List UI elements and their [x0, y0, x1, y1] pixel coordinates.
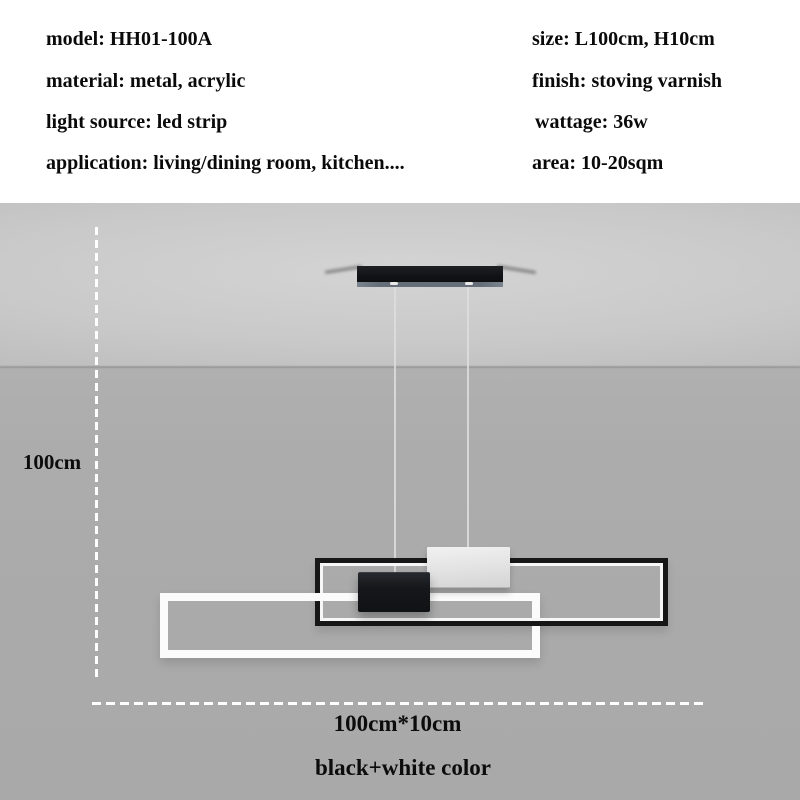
canopy-body [357, 266, 503, 282]
spec-wattage: wattage: 36w [535, 110, 648, 134]
spec-finish: finish: stoving varnish [532, 69, 722, 93]
black-frame-front-crossing [528, 618, 546, 626]
canopy-trim [357, 282, 503, 287]
wire-connector-left [390, 282, 398, 285]
spec-material: material: metal, acrylic [46, 69, 245, 93]
height-dimension-label: 100cm [8, 450, 96, 475]
black-driver-box [358, 572, 430, 612]
suspension-wire-right [467, 287, 469, 548]
white-rectangle-frame [160, 593, 540, 658]
ceiling-wall-junction-line [0, 366, 800, 368]
spec-area: area: 10-20sqm [532, 151, 663, 175]
product-spec-image: model: HH01-100A material: metal, acryli… [0, 0, 800, 800]
spec-section: model: HH01-100A material: metal, acryli… [0, 0, 800, 203]
spec-model: model: HH01-100A [46, 27, 212, 51]
spec-size: size: L100cm, H10cm [532, 27, 715, 51]
spec-light-source: light source: led strip [46, 110, 227, 134]
white-driver-box [427, 547, 510, 588]
color-variant-label: black+white color [92, 755, 714, 781]
size-dimension-label: 100cm*10cm [92, 711, 703, 737]
ceiling-canopy [357, 266, 503, 287]
spec-application: application: living/dining room, kitchen… [46, 151, 405, 175]
width-dimension-line [92, 702, 703, 705]
wire-connector-right [465, 282, 473, 285]
suspension-wire-left [394, 287, 396, 572]
